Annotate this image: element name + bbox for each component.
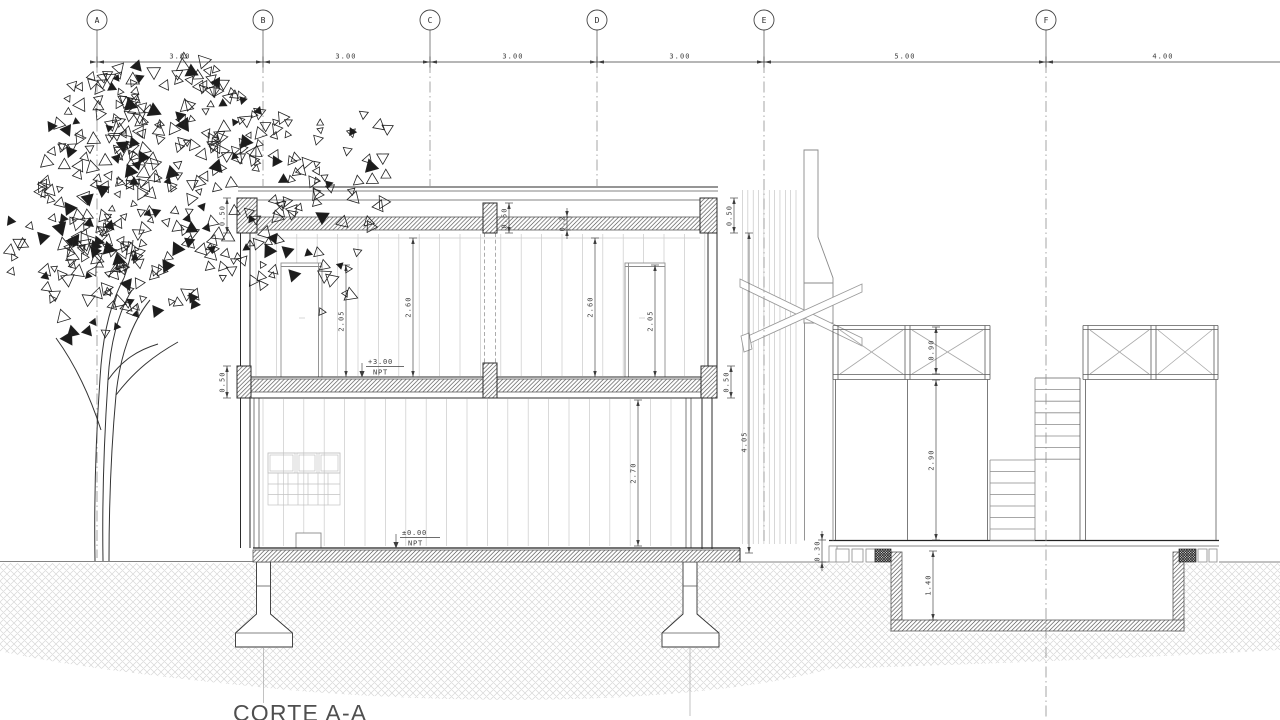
stairs xyxy=(990,378,1080,541)
level-marker-upper: +3.00 NPT xyxy=(359,358,404,378)
grid-bubble-f: F xyxy=(1036,10,1056,62)
tree xyxy=(4,52,394,561)
dim-door-right: 2.05 xyxy=(647,310,655,331)
pool-wall-right xyxy=(1173,552,1184,631)
span-cd: 3.00 xyxy=(502,53,523,61)
floor-beam-right xyxy=(701,366,717,398)
dim-door-left: 2.05 xyxy=(338,310,346,331)
ground-floor-siding xyxy=(263,399,671,546)
dim-deck-thickness: 0.30 xyxy=(814,540,822,561)
grid-bubble-a: A xyxy=(87,10,107,62)
section-title: CORTE A-A xyxy=(233,700,367,720)
pool-floor xyxy=(891,620,1184,631)
grid-label-b: B xyxy=(261,16,266,25)
grid-bubble-e: E xyxy=(754,10,774,62)
span-ef: 5.00 xyxy=(894,53,915,61)
dim-section-height: 4.05 xyxy=(741,431,749,452)
tree-foliage xyxy=(4,52,394,345)
x-braced-railing xyxy=(833,326,1218,541)
parapet-right xyxy=(700,198,717,233)
dim-railing-height: 0.90 xyxy=(928,339,936,360)
grid-bubble-c: C xyxy=(420,10,440,62)
dim-parapet-left: 0.50 xyxy=(219,205,227,226)
span-de: 3.00 xyxy=(669,53,690,61)
floor-beam-stub xyxy=(483,363,497,398)
section-drawing-canvas: 3.00 3.00 3.00 3.00 5.00 4.00 2.05 2.60 … xyxy=(0,0,1280,720)
level-marker-ground: ±0.00 NPT xyxy=(393,529,440,549)
hidden-column xyxy=(485,233,496,363)
door-left xyxy=(281,263,322,377)
roof-assembly xyxy=(237,187,718,238)
right-structure xyxy=(740,150,1218,544)
level-upper-ref: NPT xyxy=(373,369,388,377)
span-bc: 3.00 xyxy=(335,53,356,61)
dim-roof-slab: 0.2 xyxy=(559,216,567,232)
grid-label-c: C xyxy=(428,16,433,25)
building-section xyxy=(237,187,740,562)
dim-storey-left: 2.60 xyxy=(405,296,413,317)
level-ground-ref: NPT xyxy=(408,540,423,548)
grid-label-f: F xyxy=(1044,16,1049,25)
grid-label-e: E xyxy=(762,16,767,25)
floor-beam-left xyxy=(237,366,251,398)
chimney xyxy=(804,150,833,541)
dim-roof-stub: 0.50 xyxy=(501,207,509,228)
pool-coping-left xyxy=(875,549,891,562)
dim-ground-storey: 2.70 xyxy=(630,462,638,483)
grid-label-a: A xyxy=(95,16,100,25)
pool-wall-left xyxy=(891,552,902,631)
door-right xyxy=(625,263,665,377)
span-f-end: 4.00 xyxy=(1152,53,1173,61)
base-box xyxy=(296,533,321,548)
dim-storey-right: 2.60 xyxy=(587,296,595,317)
grid-bubble-d: D xyxy=(587,10,607,62)
grid-label-d: D xyxy=(595,16,600,25)
dim-pool-depth: 1.40 xyxy=(925,574,933,595)
grid-bubble-b: B xyxy=(253,10,273,62)
level-ground-value: ±0.00 xyxy=(402,529,427,537)
back-wall-siding xyxy=(743,190,797,544)
pool-coping-right xyxy=(1179,549,1196,562)
level-upper-value: +3.00 xyxy=(368,358,393,366)
roof-beam-stub xyxy=(483,203,497,233)
dim-floor-beam-left: 0.50 xyxy=(219,371,227,392)
dim-railing-clear: 2.90 xyxy=(928,449,936,470)
dim-floor-beam-right: 0.50 xyxy=(723,371,731,392)
ground-slab xyxy=(253,548,740,562)
span-ab: 3.00 xyxy=(169,53,190,61)
dim-parapet-right: 0.50 xyxy=(726,205,734,226)
